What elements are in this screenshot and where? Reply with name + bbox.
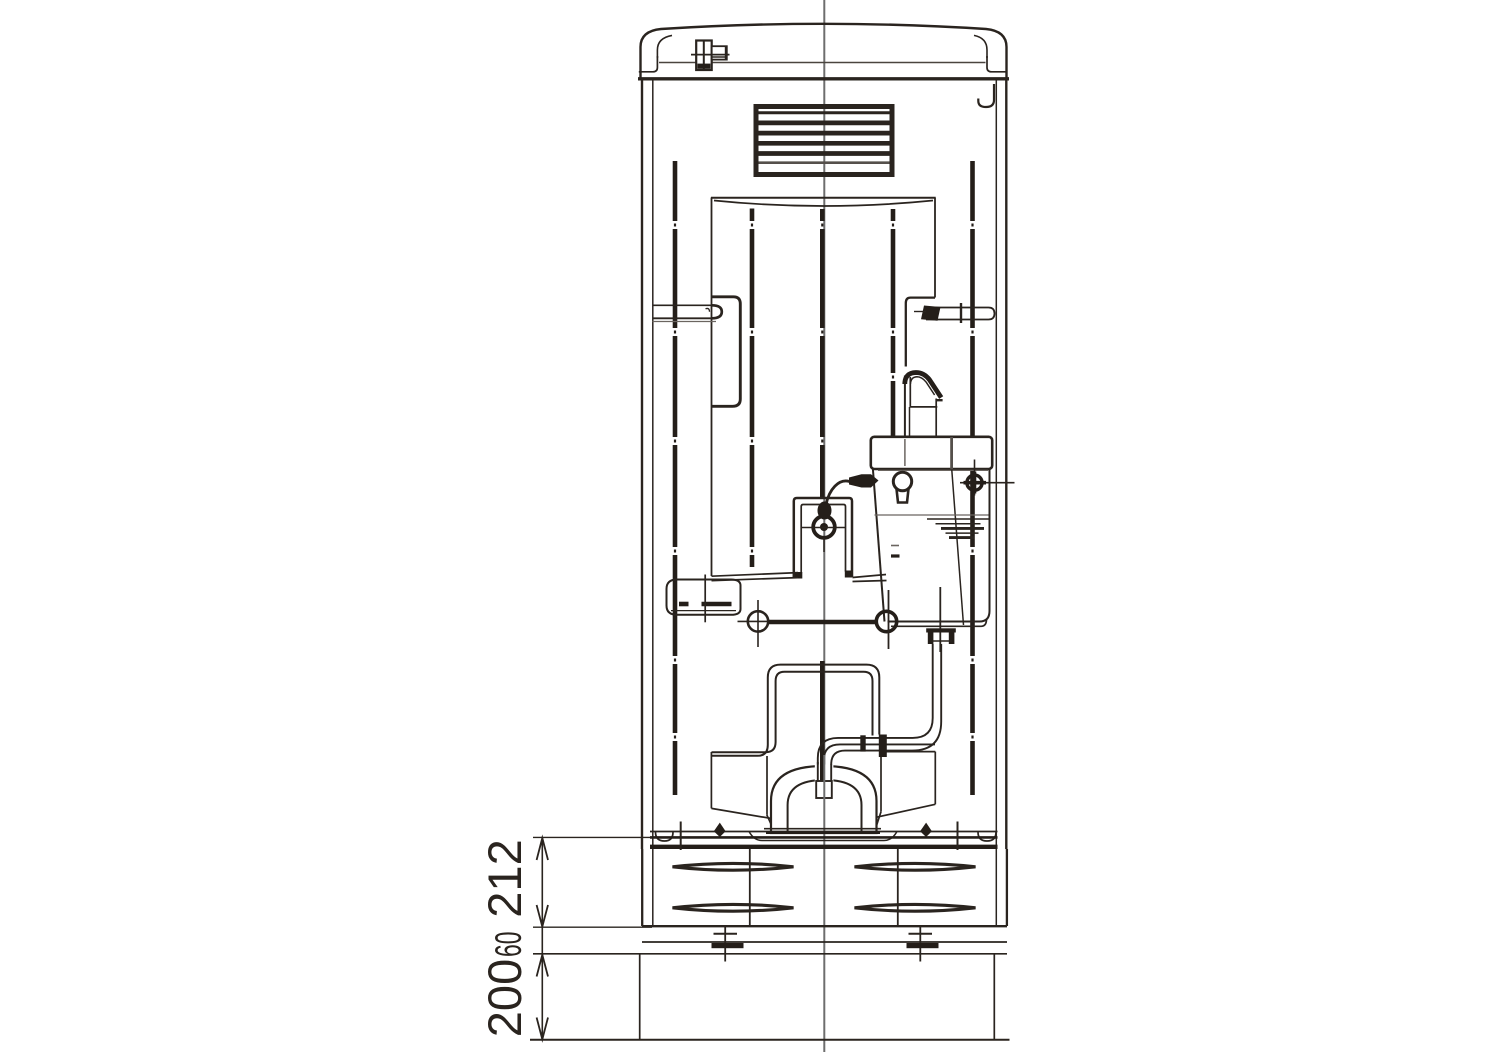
svg-text:60: 60 xyxy=(487,932,529,958)
svg-text:200: 200 xyxy=(478,959,531,1037)
svg-text:212: 212 xyxy=(478,839,531,917)
